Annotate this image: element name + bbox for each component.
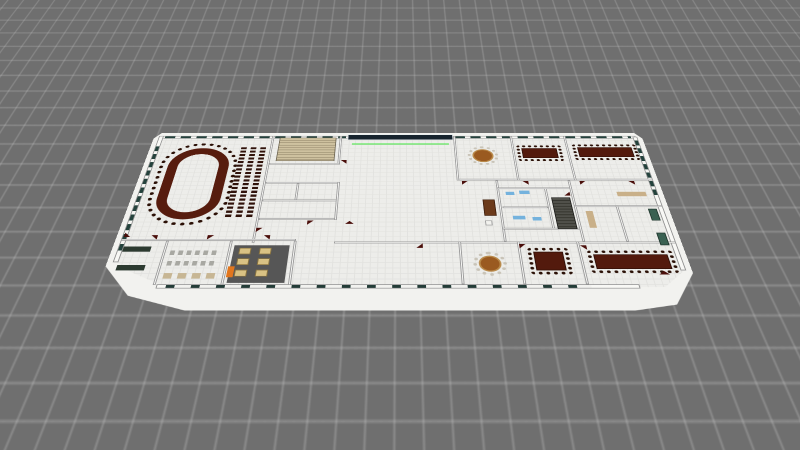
floor-plan[interactable]: [86, 133, 710, 318]
round-table[interactable]: [472, 149, 495, 162]
office-desk[interactable]: [122, 247, 151, 252]
staircase-main[interactable]: [276, 138, 337, 161]
lounge-armchair[interactable]: [259, 248, 272, 254]
wall-topright-bottom: [457, 179, 654, 181]
meeting-table[interactable]: [533, 252, 567, 271]
boardroom-table[interactable]: [577, 147, 635, 157]
lounge-armchair[interactable]: [257, 258, 270, 265]
entrance-green-strip: [352, 143, 449, 144]
training-chair-row[interactable]: [166, 261, 218, 266]
dresser-cabinet[interactable]: [483, 200, 497, 216]
lounge-armchair[interactable]: [236, 258, 250, 265]
wall-mr-3: [496, 187, 571, 189]
wall-wc-top: [266, 182, 340, 184]
top-windows-right: [455, 136, 632, 138]
training-table-row[interactable]: [162, 273, 215, 279]
entrance-glazing: [347, 134, 453, 140]
desk-chair[interactable]: [485, 221, 493, 226]
wc-fixture-blue[interactable]: [532, 217, 542, 221]
boardroom-table[interactable]: [593, 254, 672, 269]
office-desk[interactable]: [115, 265, 145, 270]
wall-stairs-bottom: [269, 163, 340, 165]
lounge-armchair[interactable]: [255, 270, 269, 277]
training-chair-row[interactable]: [169, 250, 220, 255]
wc-fixture-blue[interactable]: [513, 216, 526, 220]
lounge-armchair[interactable]: [238, 248, 251, 254]
wall-wc-mid: [262, 200, 338, 202]
wall-bottom-top: [334, 241, 676, 243]
wall-wc2-stall: [503, 206, 549, 208]
wc-fixture-blue[interactable]: [519, 191, 530, 194]
lounge-armchair[interactable]: [234, 270, 248, 277]
cabinet-tan[interactable]: [616, 192, 647, 196]
wall-bottomleft-top: [121, 239, 296, 241]
wc-fixture-blue[interactable]: [505, 192, 514, 195]
wall-wc-bottom: [259, 218, 337, 220]
3d-viewport[interactable]: [0, 0, 800, 450]
meeting-table[interactable]: [521, 148, 559, 158]
bottom-windows: [165, 285, 592, 288]
